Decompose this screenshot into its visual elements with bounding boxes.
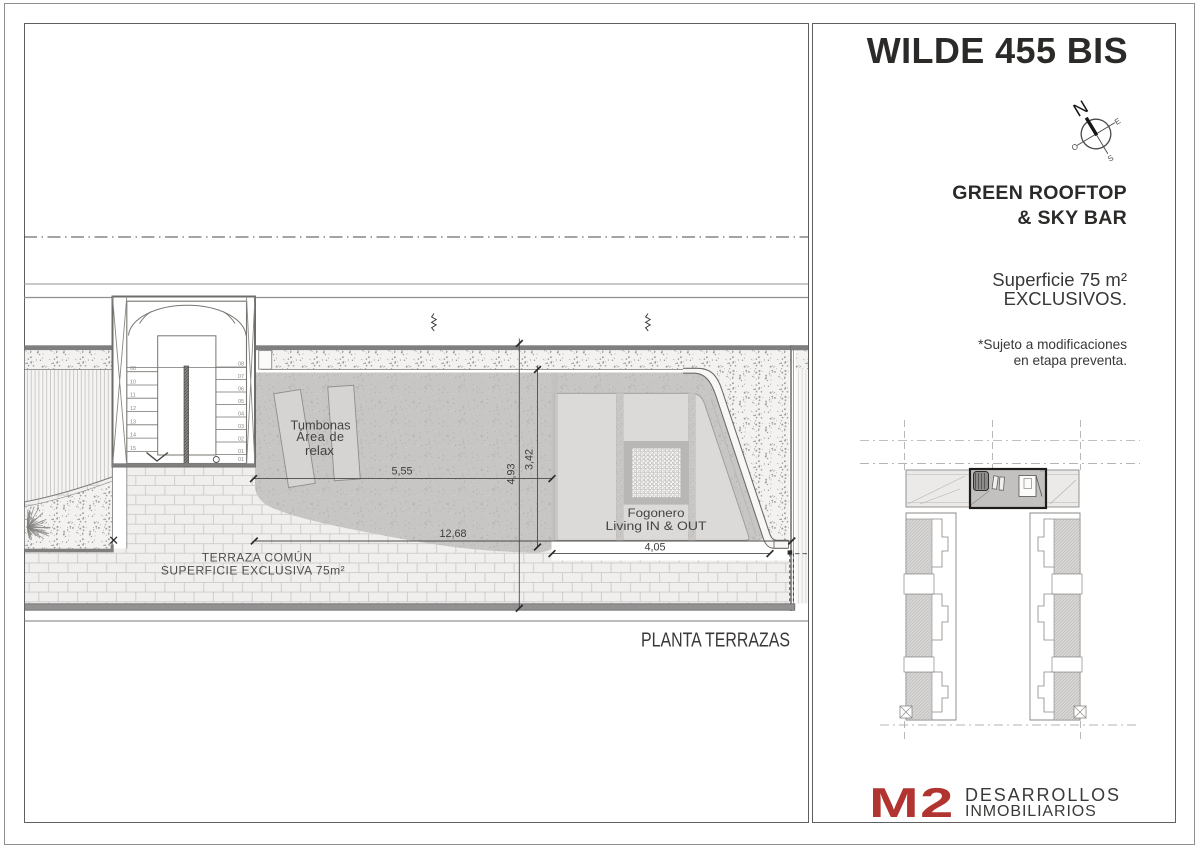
svg-text:12: 12 xyxy=(130,406,136,412)
svg-text:14: 14 xyxy=(130,433,136,439)
svg-text:07: 07 xyxy=(238,374,244,380)
svg-text:13: 13 xyxy=(130,419,136,425)
svg-text:E: E xyxy=(1113,116,1122,126)
svg-text:04: 04 xyxy=(238,412,244,418)
svg-text:4,93: 4,93 xyxy=(506,463,518,484)
svg-text:TERRAZA COMÚN: TERRAZA COMÚN xyxy=(202,550,313,565)
svg-text:05: 05 xyxy=(238,399,244,405)
svg-text:02: 02 xyxy=(238,437,244,443)
svg-text:08: 08 xyxy=(238,362,244,368)
svg-text:12,68: 12,68 xyxy=(439,528,466,540)
svg-text:Fogonero: Fogonero xyxy=(628,506,685,520)
svg-text:O: O xyxy=(1070,142,1080,153)
svg-text:relax: relax xyxy=(305,444,335,458)
svg-text:01: 01 xyxy=(238,457,244,463)
svg-text:11: 11 xyxy=(130,393,136,399)
svg-text:Living IN & OUT: Living IN & OUT xyxy=(606,519,708,533)
svg-text:Área de: Área de xyxy=(296,429,344,444)
svg-text:10: 10 xyxy=(130,380,136,386)
svg-text:S: S xyxy=(1106,153,1115,163)
svg-text:06: 06 xyxy=(238,387,244,393)
svg-text:N: N xyxy=(1069,96,1091,121)
svg-text:08: 08 xyxy=(130,366,136,372)
svg-text:5,55: 5,55 xyxy=(391,466,412,478)
svg-text:PLANTA TERRAZAS: PLANTA TERRAZAS xyxy=(641,630,790,652)
svg-text:SUPERFICIE EXCLUSIVA 75m²: SUPERFICIE EXCLUSIVA 75m² xyxy=(161,564,345,578)
svg-text:15: 15 xyxy=(130,446,136,452)
svg-text:01: 01 xyxy=(238,449,244,455)
svg-text:3,42: 3,42 xyxy=(524,449,536,470)
svg-text:4,05: 4,05 xyxy=(644,542,665,554)
svg-text:03: 03 xyxy=(238,424,244,430)
